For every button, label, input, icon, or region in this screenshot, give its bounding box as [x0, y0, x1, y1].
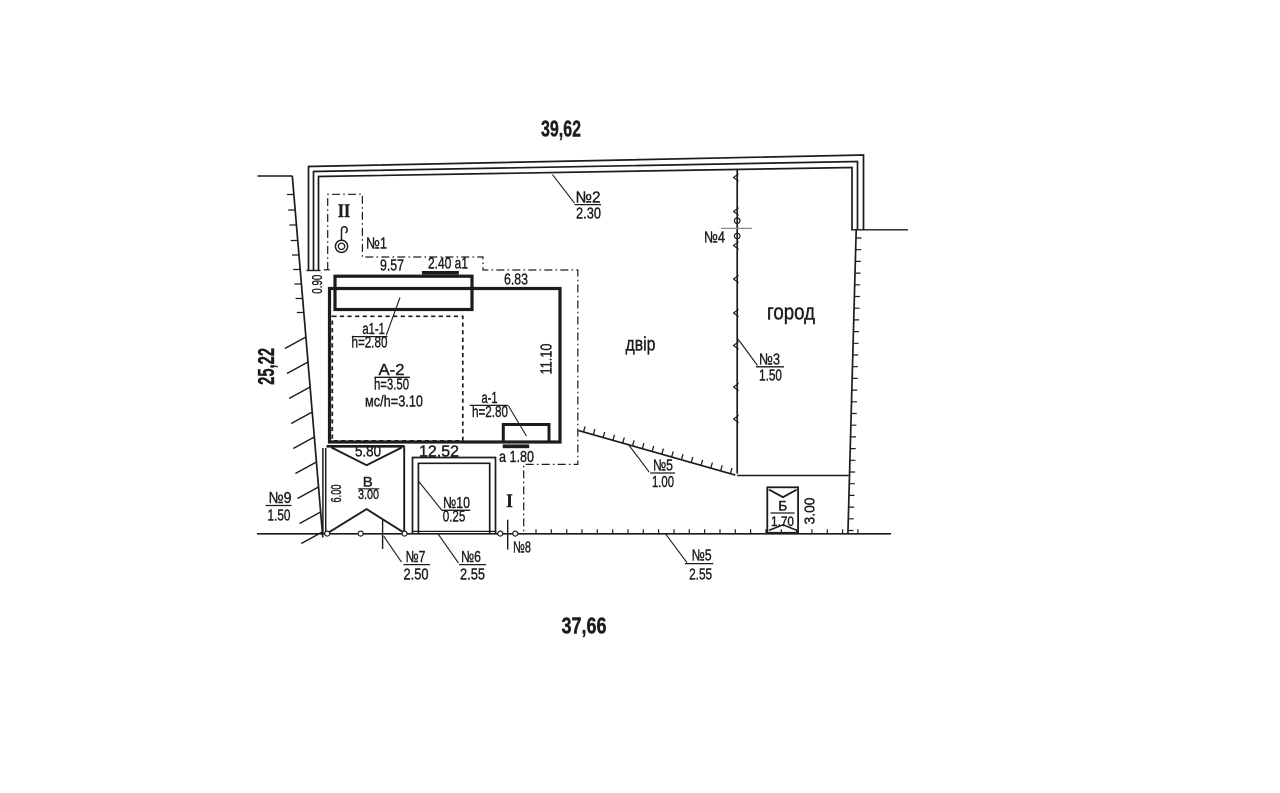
svg-text:h=2.80: h=2.80	[352, 335, 388, 352]
svg-text:h=2.80: h=2.80	[472, 404, 508, 421]
svg-text:6.83: 6.83	[504, 272, 528, 289]
svg-text:мс/h=3.10: мс/h=3.10	[365, 393, 423, 410]
svg-text:2.55: 2.55	[689, 567, 712, 584]
svg-text:№9: №9	[269, 490, 292, 507]
svg-text:№4: №4	[704, 230, 725, 247]
svg-text:0.25: 0.25	[443, 509, 466, 526]
svg-text:II: II	[338, 202, 351, 222]
svg-text:39,62: 39,62	[541, 116, 581, 142]
svg-text:двір: двір	[626, 335, 656, 356]
svg-text:№3: №3	[759, 352, 780, 369]
svg-text:a 1.80: a 1.80	[499, 449, 534, 466]
svg-text:№6: №6	[461, 549, 481, 566]
svg-text:11.10: 11.10	[539, 343, 556, 374]
svg-text:№2: №2	[576, 190, 601, 207]
svg-text:№5: №5	[653, 457, 673, 474]
svg-text:1.50: 1.50	[759, 368, 782, 385]
svg-text:№5: №5	[692, 548, 712, 565]
svg-text:6.00: 6.00	[328, 485, 345, 503]
svg-text:2.30: 2.30	[576, 206, 601, 223]
svg-text:1.70: 1.70	[771, 514, 794, 529]
svg-text:0.90: 0.90	[309, 275, 326, 294]
svg-text:25,22: 25,22	[253, 348, 279, 385]
svg-text:2.55: 2.55	[460, 567, 485, 584]
svg-text:2.50: 2.50	[404, 567, 429, 584]
svg-text:Б: Б	[778, 499, 787, 514]
svg-text:№1: №1	[366, 236, 387, 253]
svg-text:2.40 a1: 2.40 a1	[428, 256, 468, 273]
svg-text:№7: №7	[406, 549, 426, 566]
svg-text:9.57: 9.57	[380, 258, 404, 275]
svg-text:h=3.50: h=3.50	[374, 376, 409, 393]
svg-text:I: I	[506, 492, 513, 512]
svg-text:3.00: 3.00	[802, 498, 819, 525]
svg-text:3.00: 3.00	[358, 487, 379, 502]
svg-text:город: город	[767, 300, 815, 325]
svg-text:1.00: 1.00	[652, 474, 674, 491]
svg-text:1.50: 1.50	[268, 508, 291, 525]
svg-text:№8: №8	[513, 540, 531, 557]
svg-text:37,66: 37,66	[562, 613, 607, 639]
